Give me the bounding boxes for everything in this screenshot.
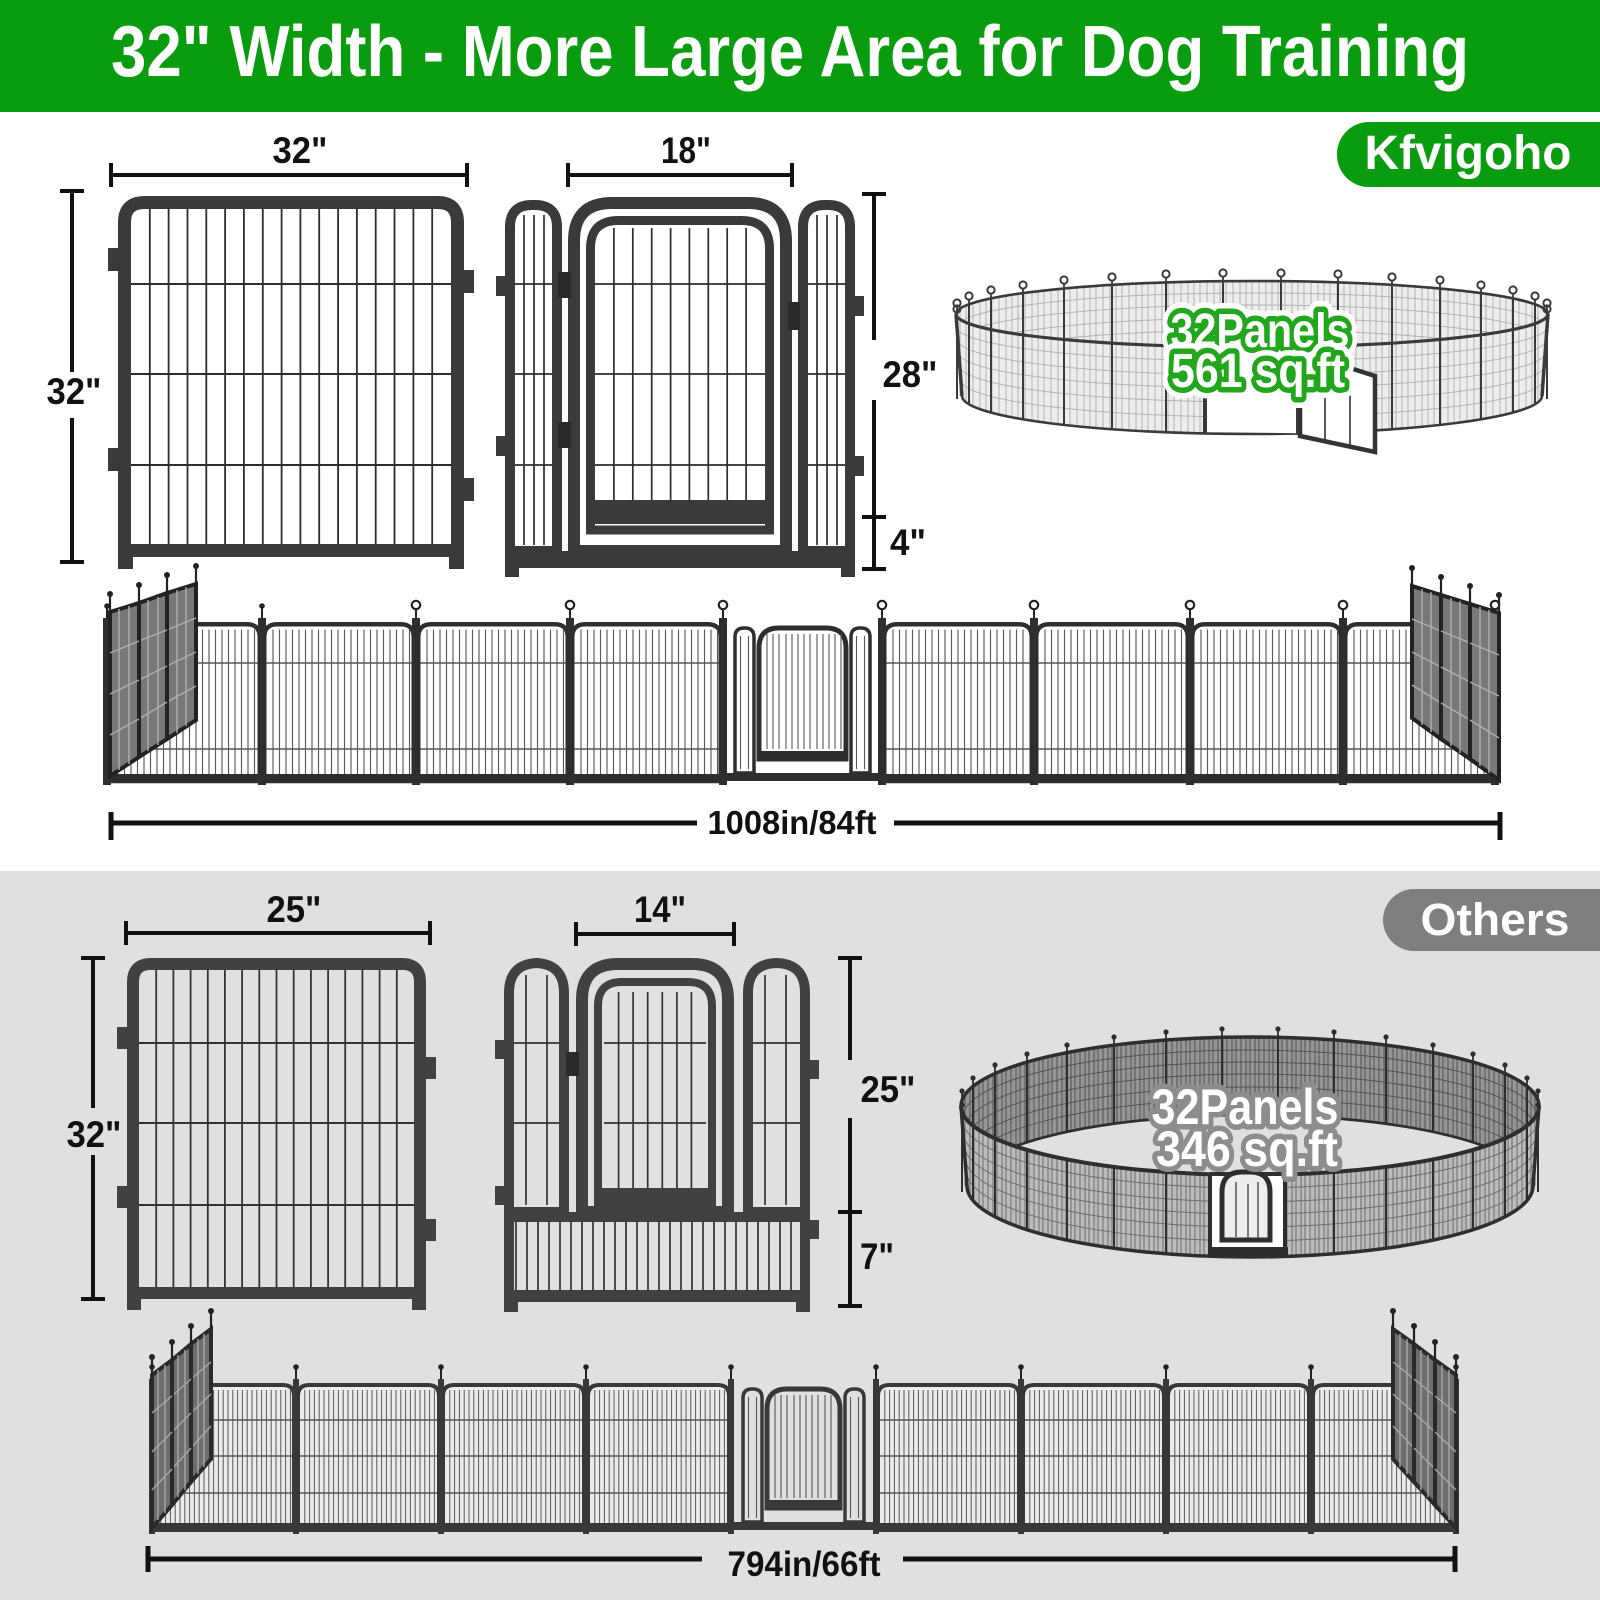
svg-text:Others: Others	[1421, 894, 1570, 945]
svg-text:25": 25"	[267, 889, 322, 930]
svg-text:14": 14"	[634, 889, 686, 930]
svg-text:561 sq.ft: 561 sq.ft	[1171, 345, 1345, 398]
svg-text:28": 28"	[883, 354, 938, 395]
svg-text:346 sq.ft: 346 sq.ft	[1156, 1121, 1338, 1177]
svg-text:7": 7"	[860, 1236, 894, 1277]
svg-text:Kfvigoho: Kfvigoho	[1365, 127, 1572, 180]
svg-text:25": 25"	[861, 1069, 916, 1110]
svg-text:32" Width - More Large Area fo: 32" Width - More Large Area for Dog Trai…	[111, 12, 1469, 92]
svg-text:1008in/84ft: 1008in/84ft	[708, 804, 877, 841]
svg-text:18": 18"	[661, 130, 711, 171]
svg-text:32": 32"	[47, 371, 102, 412]
svg-text:32": 32"	[273, 130, 328, 171]
svg-text:794in/66ft: 794in/66ft	[728, 1545, 881, 1584]
svg-text:4": 4"	[890, 522, 926, 563]
svg-text:32": 32"	[67, 1114, 122, 1155]
